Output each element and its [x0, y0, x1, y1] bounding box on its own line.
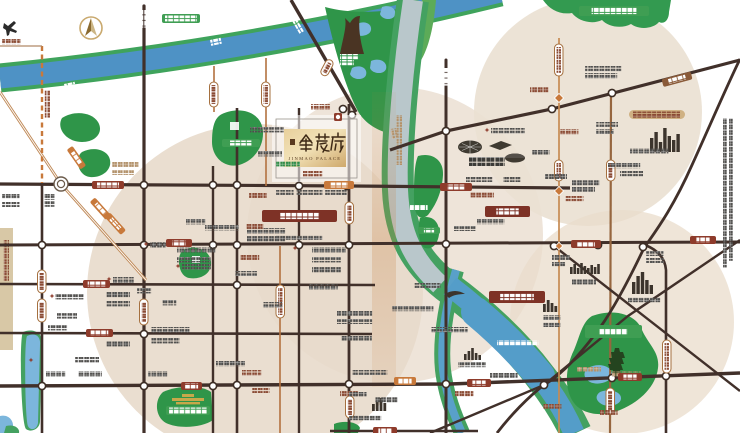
- svg-text:JINMAO PALACE: JINMAO PALACE: [289, 156, 342, 161]
